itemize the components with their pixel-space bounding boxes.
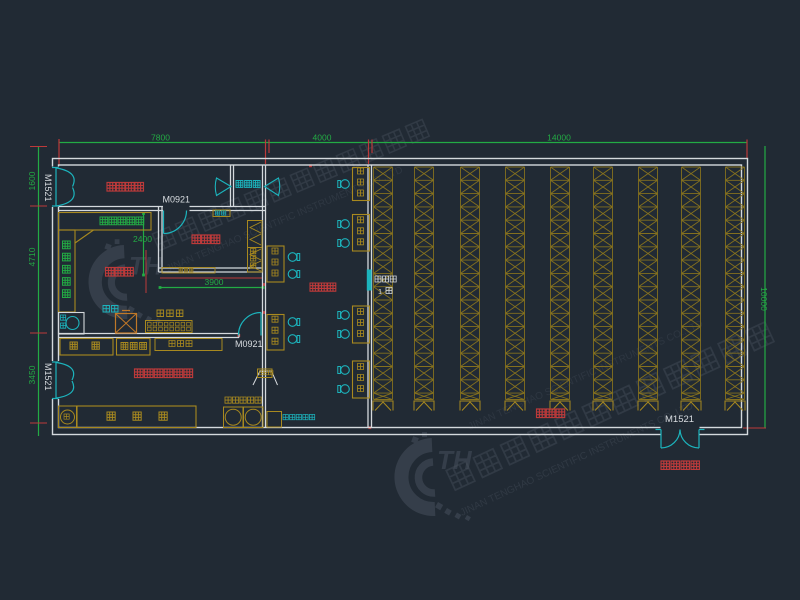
svg-text:10000: 10000 bbox=[759, 287, 769, 311]
svg-text:M1521: M1521 bbox=[43, 363, 53, 391]
svg-text:3900: 3900 bbox=[205, 277, 224, 287]
svg-text:M0921: M0921 bbox=[163, 195, 191, 205]
svg-text:2400: 2400 bbox=[133, 234, 152, 244]
svg-text:1600: 1600 bbox=[27, 171, 37, 190]
svg-text:1: 1 bbox=[378, 287, 382, 296]
svg-text:7800: 7800 bbox=[151, 133, 170, 143]
svg-text:14000: 14000 bbox=[547, 133, 571, 143]
svg-text:4710: 4710 bbox=[27, 247, 37, 266]
svg-text:M0921: M0921 bbox=[235, 339, 263, 349]
svg-text:4000: 4000 bbox=[313, 133, 332, 143]
svg-text:M1521: M1521 bbox=[665, 414, 694, 425]
svg-text:M1521: M1521 bbox=[43, 174, 53, 202]
svg-text:TH: TH bbox=[437, 445, 473, 475]
svg-text:3450: 3450 bbox=[27, 365, 37, 384]
